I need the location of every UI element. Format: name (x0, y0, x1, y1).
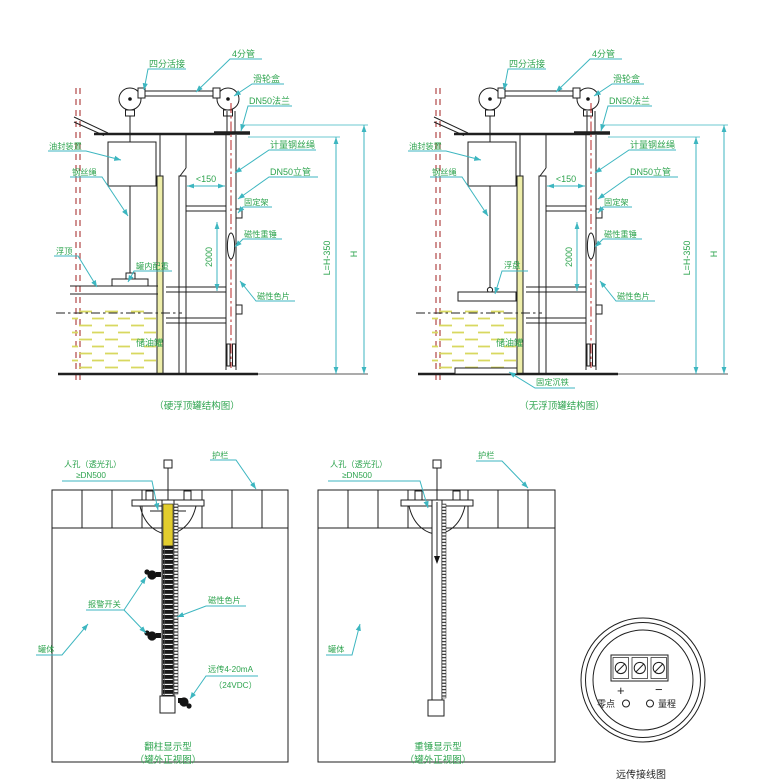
tank-front-view-weight: 人孔（透光孔） ≥DN500 护栏 罐体 重锤显示型 （罐外正视图） (318, 450, 555, 766)
label-manhole-2: ≥DN500 (342, 471, 372, 480)
label-magnetic-weight: 磁性重锤 (604, 229, 637, 239)
tank-front-view-flip-column: 人孔（透光孔） ≥DN500 护栏 报警开关 磁性色片 罐体 远传4-20mA … (36, 450, 288, 766)
label-floating-roof: 浮顶 (56, 246, 72, 256)
label-union: 四分活接 (149, 58, 185, 69)
label-oil-seal: 油封装置 (409, 141, 442, 151)
dim-gap: <150 (196, 174, 216, 184)
label-manhole-1: 人孔（透光孔） (330, 459, 387, 469)
caption-weight-type-1: 重锤显示型 (414, 741, 462, 753)
label-tank-body: 罐体 (328, 644, 344, 654)
caption-wiring: 远传接线图 (616, 768, 666, 781)
dim-gap: <150 (556, 174, 576, 184)
label-wire-rope: 钢丝绳 (432, 167, 457, 177)
cad-drawing: 四分活接 4分管 滑轮盒 DN50法兰 油封装置 钢丝绳 浮顶 罐内配重 计量钢… (0, 0, 768, 784)
label-remote-2: （24VDC） (214, 681, 257, 690)
label-flange: DN50法兰 (609, 95, 650, 106)
label-riser: DN50立管 (270, 166, 311, 177)
label-measuring-wire: 计量钢丝绳 (630, 139, 675, 150)
terminal-plus: + (617, 683, 625, 698)
label-storage-tank: 储油罐 (496, 337, 523, 348)
label-guardrail: 护栏 (478, 450, 494, 460)
caption-weight-type-2: （罐外正视图） (405, 754, 472, 766)
label-zero-point: 零点 (597, 699, 615, 709)
label-sinker: 固定沉铁 (536, 377, 569, 387)
terminal-minus: − (655, 682, 663, 697)
label-alarm-switch: 报警开关 (88, 599, 121, 609)
caption-no-floating-roof: （无浮顶罐结构图） (519, 400, 605, 412)
caption-hard-floating-roof: （硬浮顶罐结构图） (154, 400, 240, 412)
label-bracket: 固定架 (244, 197, 269, 207)
label-riser: DN50立管 (630, 166, 671, 177)
caption-flip-column-1: 翻柱显示型 (144, 741, 192, 753)
label-float-disc: 浮盘 (504, 260, 520, 270)
label-range: 量程 (658, 699, 676, 709)
label-flange: DN50法兰 (249, 95, 290, 106)
label-magnetic-plates: 磁性色片 (208, 595, 241, 605)
drawing-sheet: 四分活接 4分管 滑轮盒 DN50法兰 油封装置 钢丝绳 浮顶 罐内配重 计量钢… (0, 0, 768, 784)
remote-wiring-diagram: + − 零点 量程 远传接线图 (581, 618, 705, 781)
dim-h: H (709, 251, 719, 258)
caption-flip-column-2: （罐外正视图） (135, 754, 202, 766)
label-pipe4: 4分管 (592, 48, 615, 59)
dim-2000: 2000 (204, 247, 214, 267)
label-pulley-box: 滑轮盒 (613, 73, 640, 84)
label-tank-body: 罐体 (38, 644, 54, 654)
label-measuring-wire: 计量钢丝绳 (270, 139, 315, 150)
label-union: 四分活接 (509, 58, 545, 69)
label-magnetic-weight: 磁性重锤 (244, 229, 277, 239)
label-remote-1: 远传4-20mA (208, 664, 254, 674)
dim-h: H (349, 251, 359, 258)
label-magnetic-plates: 磁性色片 (257, 291, 290, 301)
label-tank-weight: 罐内配重 (136, 261, 169, 271)
dim-2000: 2000 (564, 247, 574, 267)
label-pipe4: 4分管 (232, 48, 255, 59)
label-storage-tank: 储油罐 (136, 337, 163, 348)
label-magnetic-plates: 磁性色片 (617, 291, 650, 301)
dim-l: L=H-350 (322, 241, 332, 276)
label-bracket: 固定架 (604, 197, 629, 207)
dim-l: L=H-350 (682, 241, 692, 276)
label-manhole-2: ≥DN500 (76, 471, 106, 480)
label-oil-seal: 油封装置 (49, 141, 82, 151)
label-wire-rope: 钢丝绳 (72, 167, 97, 177)
label-pulley-box: 滑轮盒 (253, 73, 280, 84)
label-manhole-1: 人孔（透光孔） (64, 459, 121, 469)
label-guardrail: 护栏 (212, 450, 228, 460)
